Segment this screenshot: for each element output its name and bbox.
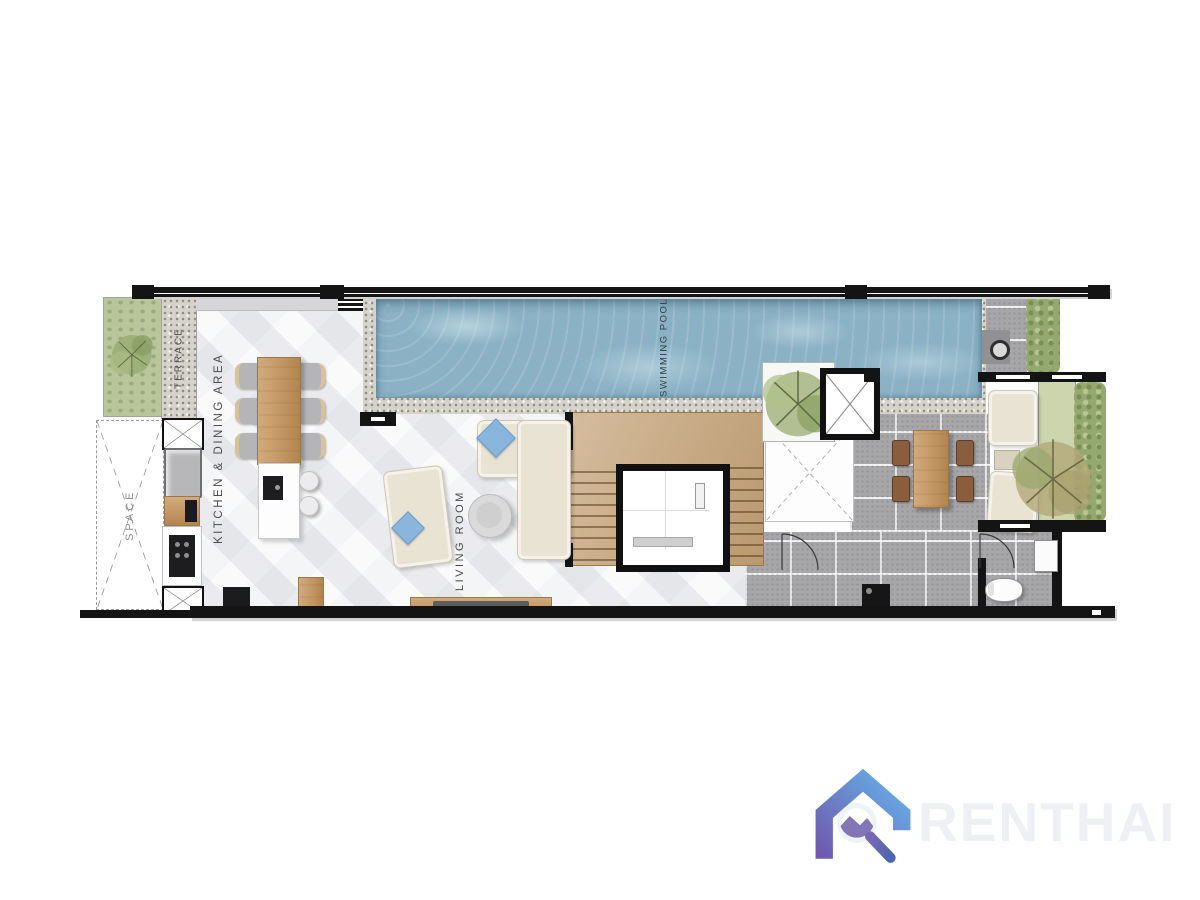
bbq-grill xyxy=(338,297,366,311)
pool-water: SWIMMING POOL xyxy=(376,296,982,398)
floor-plan: TERRACE SPACE xyxy=(80,228,1120,628)
cabinet-cross xyxy=(164,420,202,448)
elevator-step xyxy=(633,537,693,547)
wall-post xyxy=(132,285,154,299)
cooktop-counter xyxy=(162,526,202,586)
exterior-wall-bottom-left xyxy=(80,610,192,618)
elevator-door-gap xyxy=(640,550,692,559)
space-area: SPACE xyxy=(96,420,164,610)
island-sink xyxy=(263,476,283,500)
sofa-small xyxy=(382,465,453,570)
kitchen-counter-cabinet xyxy=(164,496,200,526)
terrace-tree-icon xyxy=(998,424,1108,534)
wall-slot xyxy=(1092,610,1101,615)
terrace-wall-top xyxy=(978,372,1106,382)
brand-wordmark: RENTHAI xyxy=(918,790,1176,854)
stair-treads-left xyxy=(571,471,619,565)
floor-plan-page: TERRACE SPACE xyxy=(0,0,1200,900)
wall-post xyxy=(360,412,396,426)
elevator-fixture xyxy=(695,483,705,509)
window-slot xyxy=(1052,375,1082,379)
outdoor-chair xyxy=(956,476,974,502)
window-slot xyxy=(1000,524,1030,528)
utility-dial xyxy=(866,588,872,594)
shaft-corner xyxy=(864,368,880,382)
living-room-label: LIVING ROOM xyxy=(448,494,472,588)
outdoor-shower-icon xyxy=(990,340,1010,360)
bathroom-sink xyxy=(1034,540,1058,572)
coffee-table-inner xyxy=(476,502,502,528)
cooktop xyxy=(169,535,195,577)
outdoor-dining-table xyxy=(913,430,949,508)
faucet xyxy=(275,485,280,490)
elevator-guide-line xyxy=(623,510,709,511)
sofa-l-side xyxy=(517,420,571,560)
terrace-label: TERRACE xyxy=(162,298,196,418)
post-slot xyxy=(371,417,385,421)
wall-post xyxy=(845,285,867,299)
dining-chair xyxy=(299,398,325,424)
house-magnifier-logo xyxy=(812,766,914,870)
bar-stool xyxy=(299,496,319,516)
burner xyxy=(175,553,180,558)
terrace-garden xyxy=(104,298,162,416)
swimming-pool: SWIMMING POOL xyxy=(363,294,986,414)
garden-tree-icon xyxy=(104,298,162,416)
exterior-wall-top xyxy=(138,287,1110,297)
dining-chair xyxy=(299,433,325,459)
window-slot xyxy=(996,375,1030,379)
wall-post xyxy=(320,285,344,299)
burner xyxy=(184,553,189,558)
coffee-table xyxy=(468,494,512,538)
burner xyxy=(175,542,180,547)
toilet-tank xyxy=(988,582,994,596)
kitchen-dining-label: KITCHEN & DINING AREA xyxy=(208,362,230,534)
oven xyxy=(185,500,197,522)
terrace-wall-bottom xyxy=(978,520,1106,532)
swimming-pool-label: SWIMMING POOL xyxy=(654,298,674,396)
terrace-strip: TERRACE xyxy=(162,298,196,418)
renthai-watermark: RENTHAI xyxy=(808,762,1168,877)
exterior-wall-bottom xyxy=(190,606,1115,618)
hedge-top xyxy=(1026,288,1060,374)
bathroom-door-arc xyxy=(978,532,1016,570)
shaft-closet xyxy=(820,368,880,440)
outdoor-chair xyxy=(956,440,974,466)
black-cabinet xyxy=(223,587,250,607)
outdoor-chair xyxy=(892,476,910,502)
kitchen-cabinet xyxy=(162,418,204,450)
outdoor-chair xyxy=(892,440,910,466)
toilet xyxy=(985,578,1023,602)
dining-chair xyxy=(299,363,325,389)
dining-table xyxy=(257,357,301,465)
patio-door-arc xyxy=(780,532,820,572)
bar-stool xyxy=(299,471,319,491)
kitchen-island xyxy=(258,463,300,539)
burner xyxy=(184,542,189,547)
wall-post xyxy=(1088,285,1110,299)
shaft-cross xyxy=(826,374,874,434)
fridge xyxy=(164,448,202,498)
space-label: SPACE xyxy=(97,421,163,609)
